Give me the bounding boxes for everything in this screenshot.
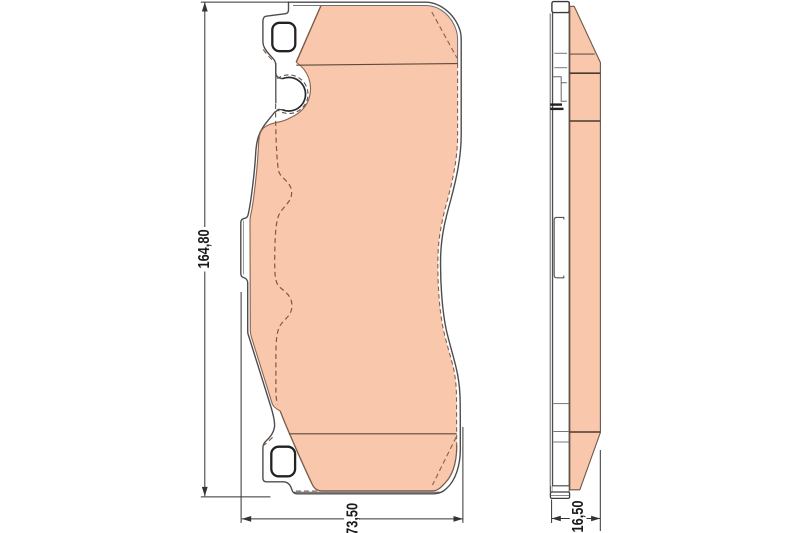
- svg-text:16,50: 16,50: [570, 501, 588, 533]
- svg-text:73,50: 73,50: [344, 503, 362, 533]
- svg-text:164,80: 164,80: [196, 229, 214, 268]
